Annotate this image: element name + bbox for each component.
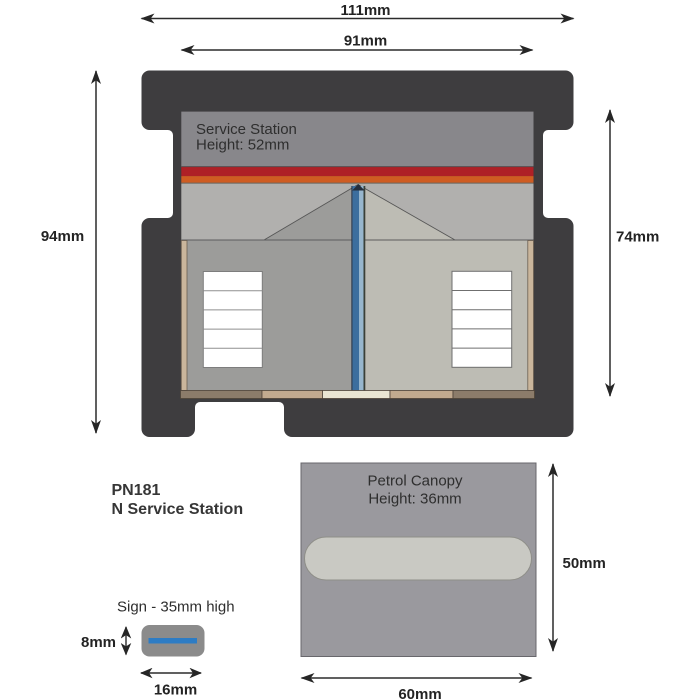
svg-text:60mm: 60mm (398, 686, 441, 700)
svg-text:74mm: 74mm (616, 229, 659, 246)
svg-text:Petrol Canopy: Petrol Canopy (367, 473, 463, 490)
svg-text:Service Station: Service Station (196, 121, 297, 138)
svg-text:91mm: 91mm (344, 33, 387, 50)
svg-text:Height: 52mm: Height: 52mm (196, 137, 289, 154)
svg-text:8mm: 8mm (81, 634, 116, 651)
svg-text:111mm: 111mm (340, 2, 390, 19)
svg-text:Sign - 35mm high: Sign - 35mm high (117, 599, 235, 616)
svg-text:50mm: 50mm (563, 555, 606, 572)
svg-text:16mm: 16mm (154, 682, 197, 699)
svg-text:Height: 36mm: Height: 36mm (368, 491, 461, 508)
svg-text:PN181: PN181 (112, 482, 161, 499)
svg-text:94mm: 94mm (41, 228, 84, 245)
svg-text:N Service Station: N Service Station (112, 501, 244, 518)
